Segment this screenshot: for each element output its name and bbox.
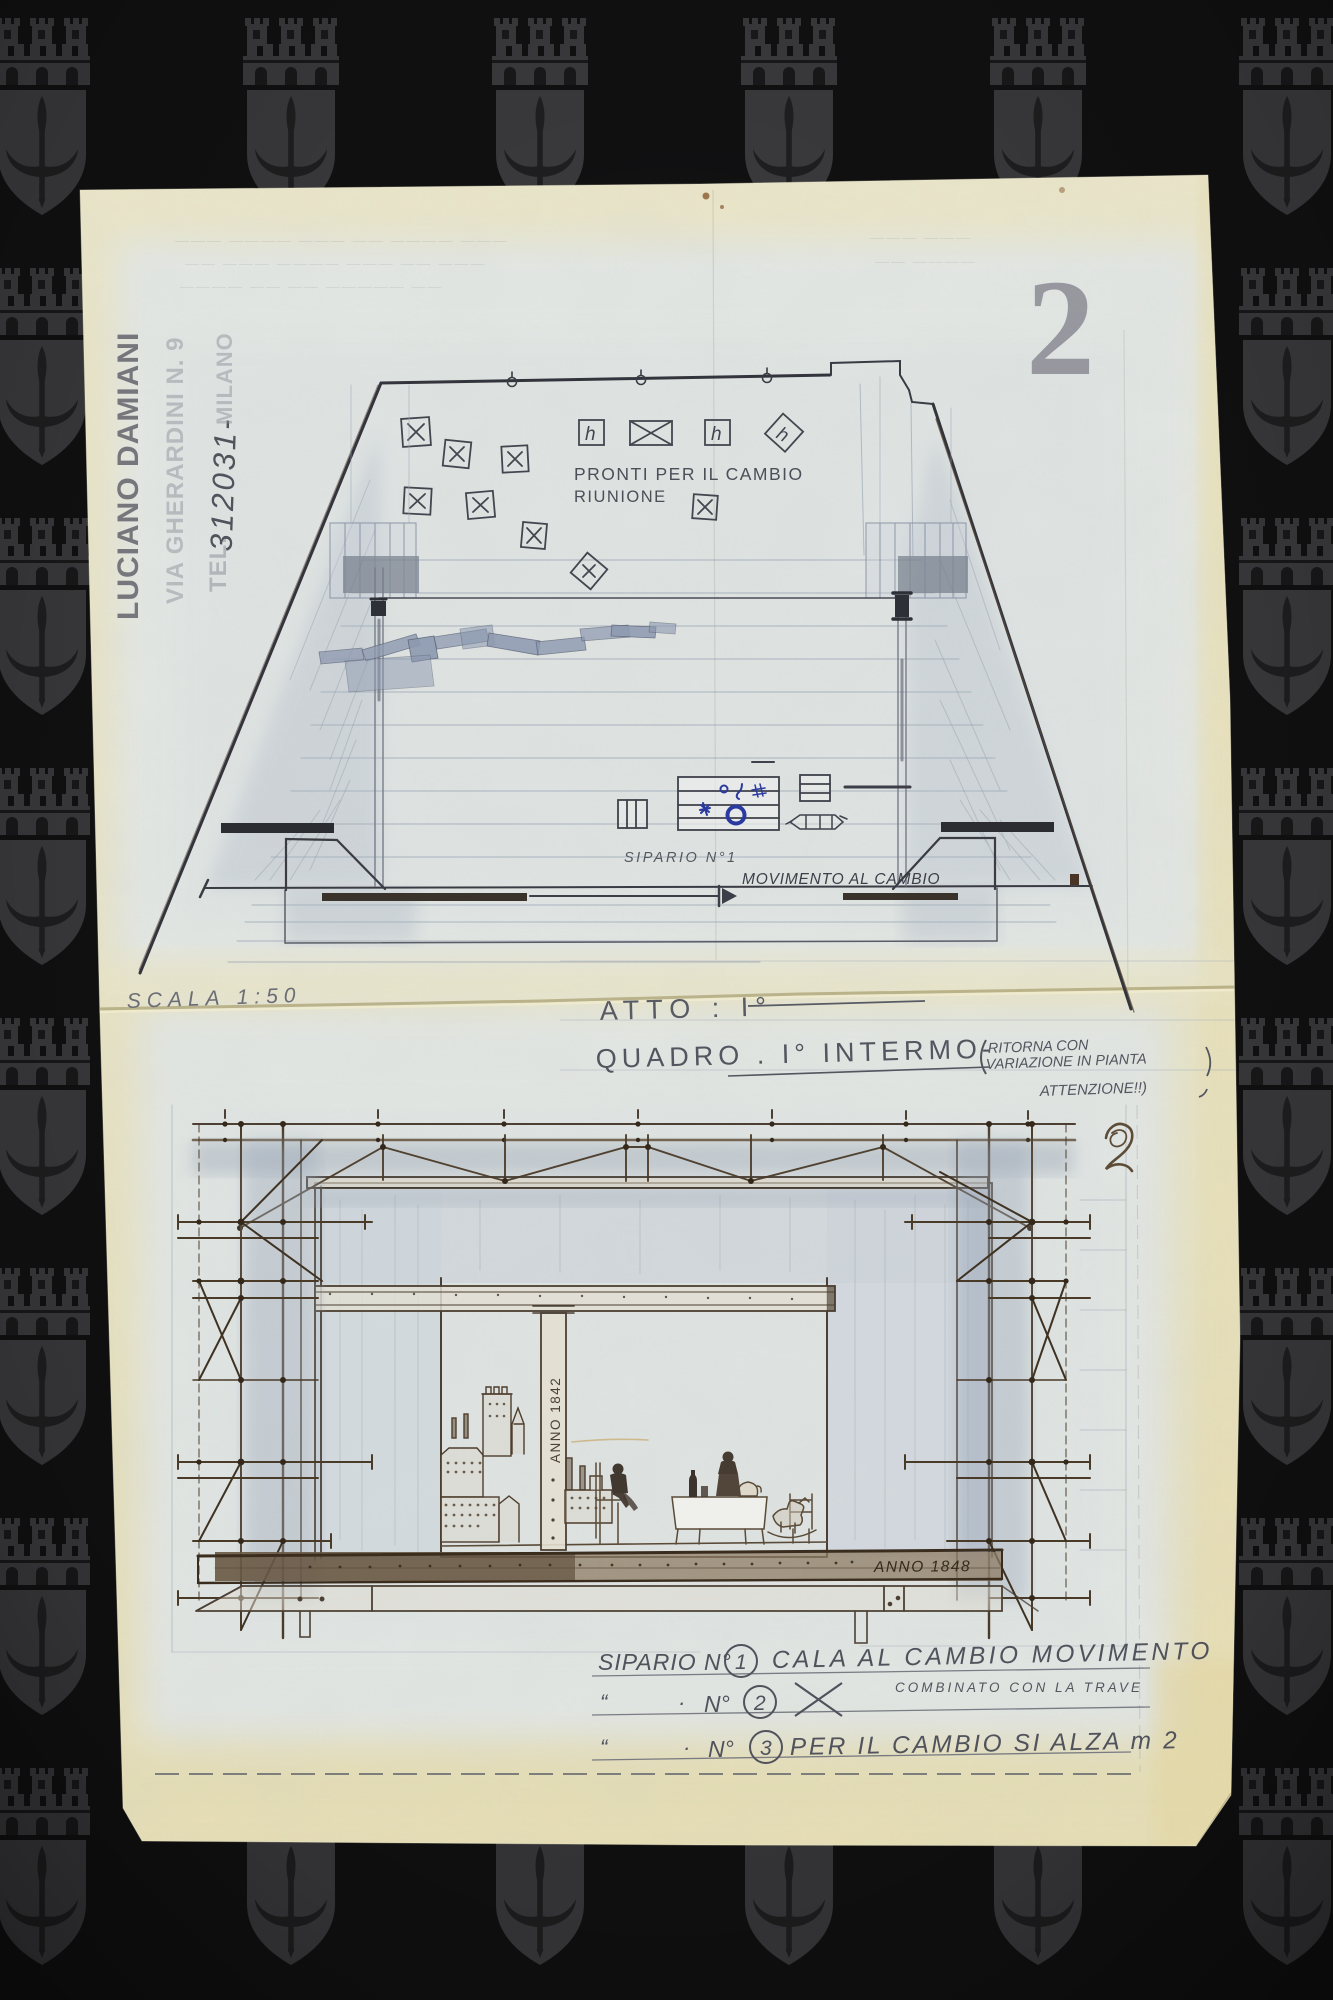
svg-text:2: 2: [1026, 251, 1095, 404]
svg-text:PRONTI PER IL CAMBIO: PRONTI PER IL CAMBIO: [574, 464, 804, 484]
svg-text:ANNO 1842: ANNO 1842: [548, 1377, 563, 1463]
svg-text:N°: N°: [708, 1736, 734, 1762]
svg-text:——— ———— ——— —— ———— —: ——— ———— ——— —— ———— ———: [175, 232, 508, 248]
svg-text:MOVIMENTO AL CAMBIO: MOVIMENTO AL CAMBIO: [742, 871, 940, 888]
svg-text:RIUNIONE: RIUNIONE: [574, 488, 667, 506]
svg-text:—— ————: —— ————: [875, 253, 977, 269]
svg-text:·: ·: [683, 1735, 690, 1760]
svg-text:N°: N°: [704, 1691, 730, 1717]
svg-text:ATTO : I°: ATTO : I°: [599, 991, 773, 1026]
svg-text:———— —— —— ————— ——: ———— —— —— ————— ——: [180, 278, 444, 294]
svg-text:1: 1: [735, 1651, 747, 1674]
svg-text:—— ——— ———— ——— —— ——: —— ——— ———— ——— —— ———: [185, 255, 486, 271]
svg-text:COMBINATO CON LA TRAVE: COMBINATO CON LA TRAVE: [895, 1680, 1143, 1695]
svg-text:312031-: 312031-: [202, 416, 243, 598]
svg-text:MILANO: MILANO: [212, 332, 237, 425]
svg-text:·: ·: [678, 1690, 685, 1715]
svg-text:SIPARIO N°1: SIPARIO N°1: [624, 850, 738, 866]
svg-text:2: 2: [753, 1692, 766, 1715]
svg-text:h: h: [585, 424, 596, 445]
svg-text:——— ———: ——— ———: [870, 229, 972, 245]
svg-text:VIA GHERARDINI N. 9: VIA GHERARDINI N. 9: [162, 337, 189, 604]
svg-text:SIPARIO N°: SIPARIO N°: [598, 1649, 732, 1675]
svg-text:3: 3: [760, 1737, 772, 1760]
svg-text:h: h: [711, 424, 722, 445]
svg-text:ANNO 1848: ANNO 1848: [873, 1558, 971, 1576]
svg-text:LUCIANO DAMIANI: LUCIANO DAMIANI: [112, 332, 145, 620]
